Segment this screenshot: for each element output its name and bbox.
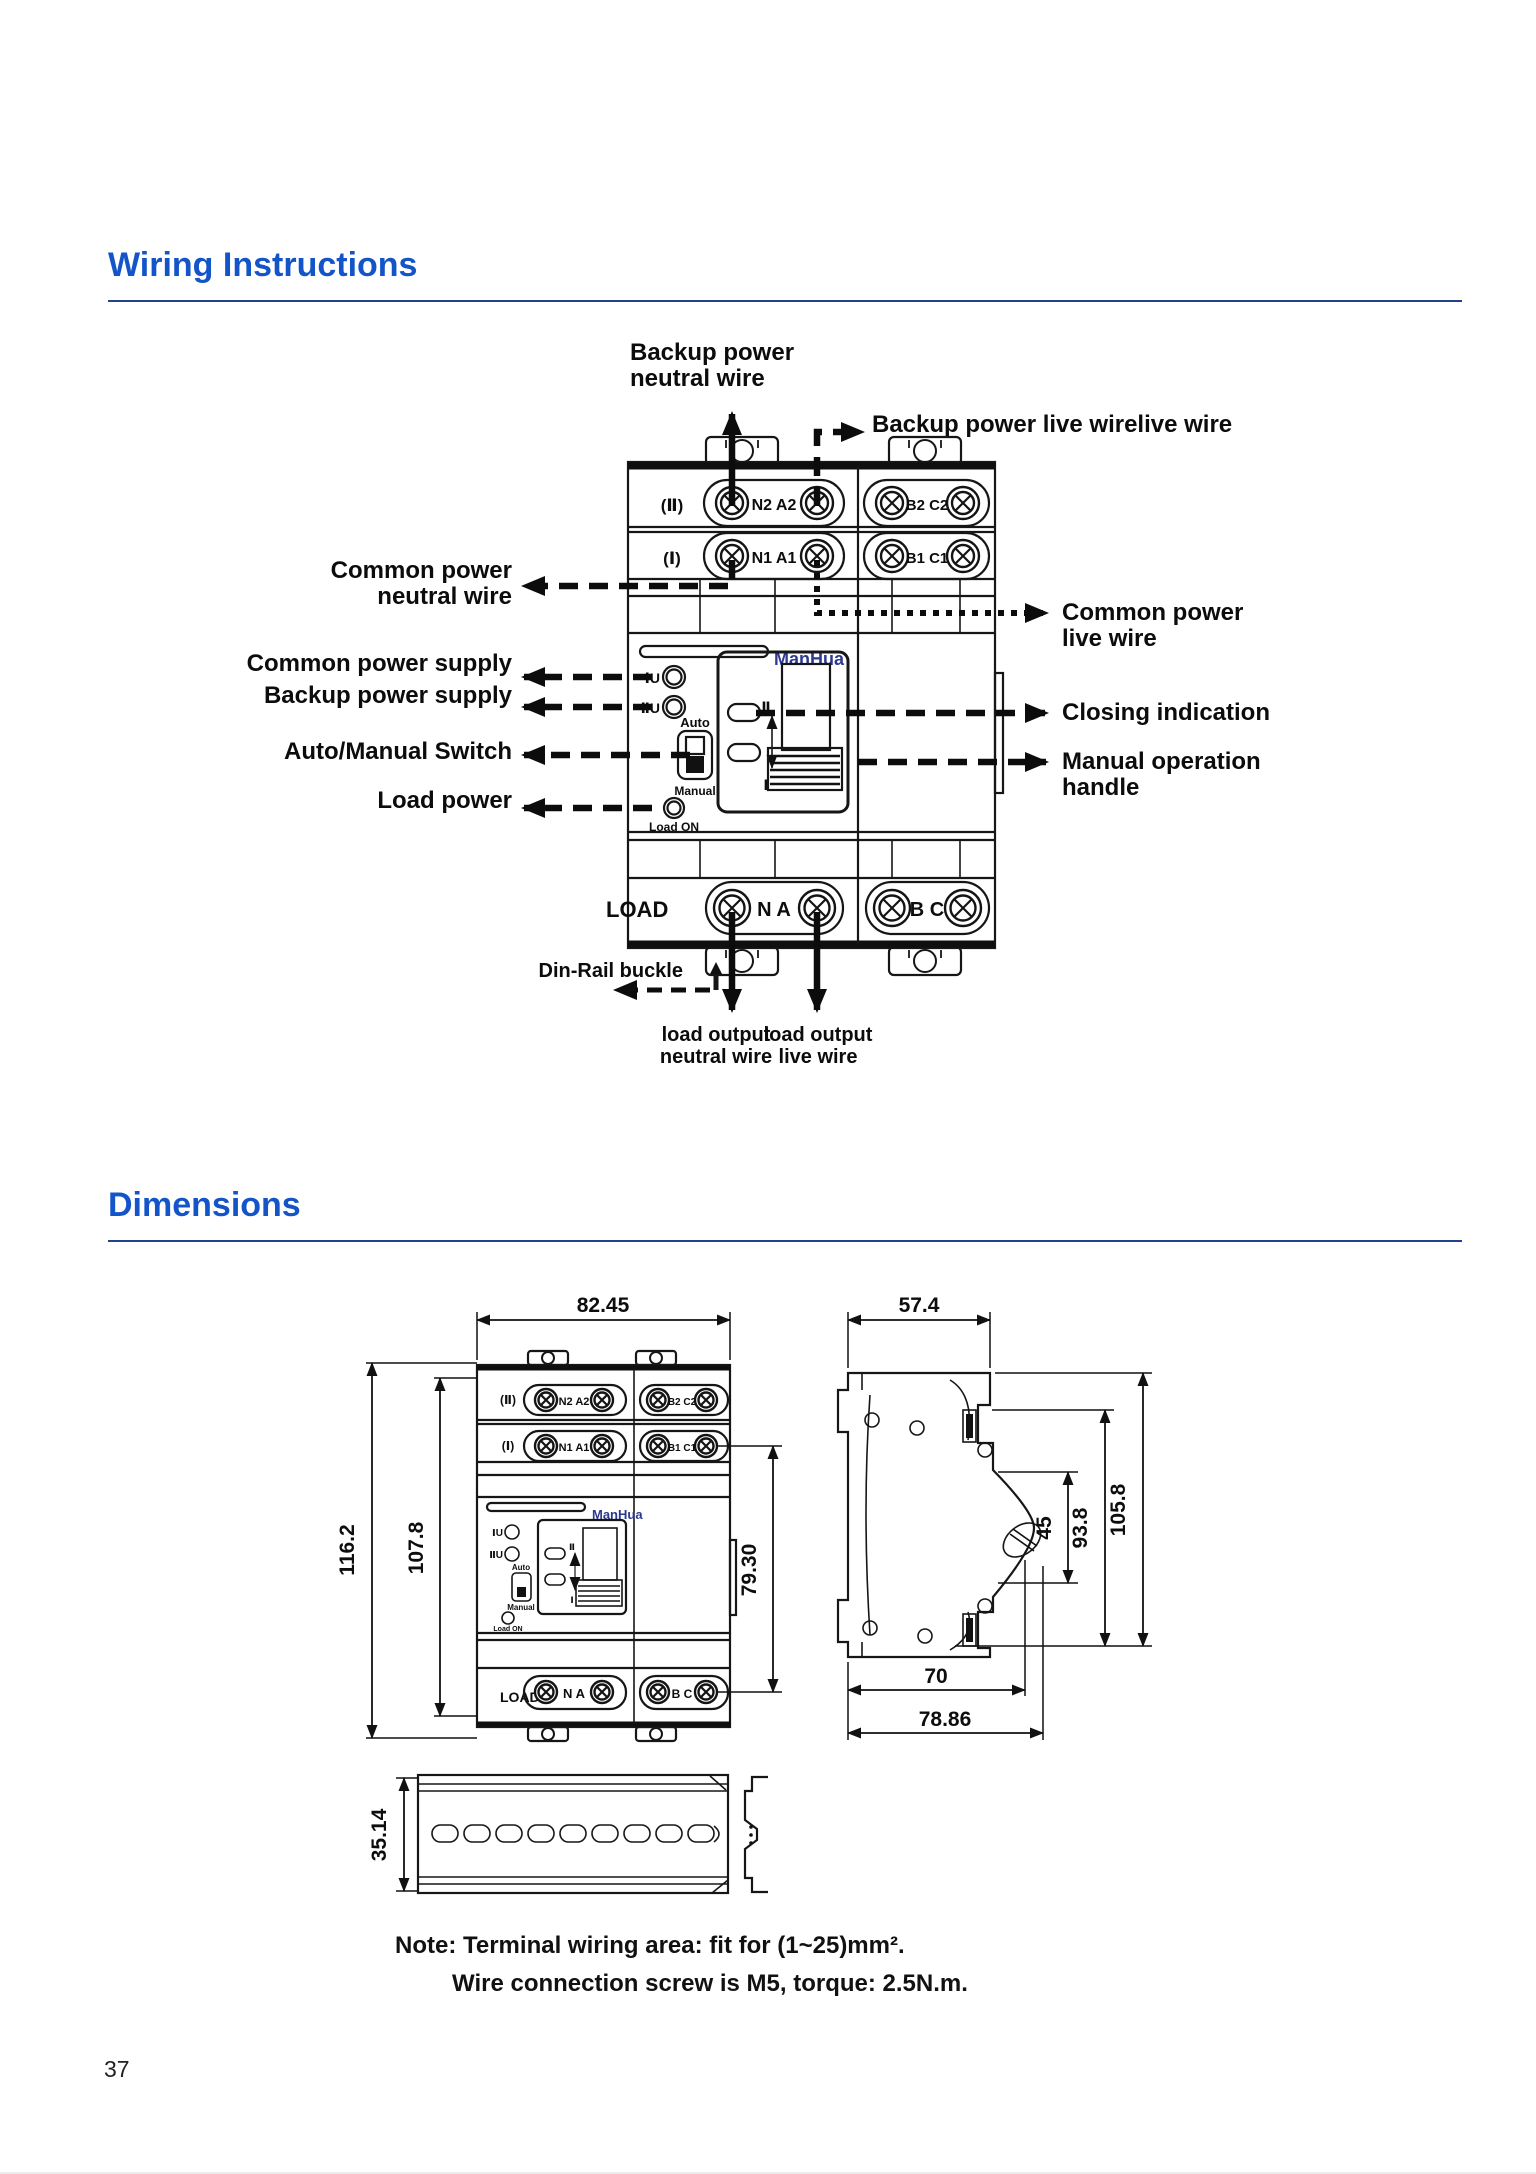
dim-side-handle: 45 (1033, 1516, 1056, 1540)
terminal-screw-icon (535, 1435, 557, 1457)
terminal-screw-icon (947, 487, 979, 519)
load-on-label: Load ON (649, 820, 699, 834)
terminal-screw-icon (647, 1389, 669, 1411)
load-text: LOAD (606, 897, 668, 922)
mounting-ear-icon (636, 1727, 676, 1741)
load-terminal-row: LOAD N A B C (606, 882, 989, 934)
diagram-canvas: (Ⅱ) N2 A2 B2 C2 (Ⅰ) (0, 0, 1536, 2172)
rail-slots (432, 1825, 714, 1842)
terminal-screw-icon (874, 890, 910, 926)
f-handle-knob (576, 1580, 622, 1606)
f-load: LOAD (500, 1689, 540, 1705)
wiring-figure: (Ⅱ) N2 A2 B2 C2 (Ⅰ) (524, 414, 1046, 1010)
dim-side-outer: 105.8 (1107, 1483, 1130, 1536)
terminal-row-2: (Ⅱ) N2 A2 B2 C2 (661, 480, 989, 526)
dimension-front-view: (Ⅱ) N2 A2 B2 C2 (Ⅰ) N1 A1 B1 C1 ManHua Ⅰ… (336, 1294, 782, 1741)
f-row1-left: N1 A1 (559, 1442, 590, 1454)
row1-right-text: B1 C1 (906, 550, 949, 567)
f-row1-right: B1 C1 (668, 1443, 697, 1454)
f-ind1: ⅠU (492, 1528, 503, 1539)
dim-front-width: 82.45 (577, 1294, 630, 1317)
mounting-ear-icon (889, 947, 961, 975)
terminal-row-1: (Ⅰ) N1 A1 B1 C1 (663, 533, 989, 579)
load-left-text: N A (757, 899, 791, 921)
dim-front-height-outer: 116.2 (336, 1524, 359, 1575)
dim-rail-height: 35.14 (368, 1808, 391, 1861)
common-live-arrow (817, 560, 1046, 613)
row2-left-text: N2 A2 (752, 497, 797, 514)
mounting-ear-icon (528, 1351, 568, 1365)
f-load-left: N A (563, 1686, 586, 1701)
terminal-screw-icon (591, 1389, 613, 1411)
ats-device-front: (Ⅱ) N2 A2 B2 C2 (Ⅰ) (606, 462, 1003, 948)
f-load-right: B C (672, 1687, 693, 1701)
din-rail-drawing: 35.14 (368, 1775, 768, 1893)
terminal-screw-icon (647, 1435, 669, 1457)
terminal-screw-icon (695, 1435, 717, 1457)
f-pos2: Ⅱ (569, 1542, 575, 1552)
dim-side-depth-total: 78.86 (919, 1708, 972, 1731)
indicator-window (728, 744, 760, 761)
f-row1-label: (Ⅰ) (502, 1439, 514, 1453)
handle-slot (782, 664, 830, 750)
closing-indicator-window (728, 704, 760, 721)
row2-right-text: B2 C2 (906, 497, 949, 514)
terminal-screw-icon (647, 1681, 669, 1703)
terminal-screw-icon (876, 540, 908, 572)
terminal-screw-icon (535, 1389, 557, 1411)
terminal-screw-icon (535, 1681, 557, 1703)
mounting-ear-icon (706, 437, 778, 465)
auto-label: Auto (680, 715, 710, 730)
terminal-screw-icon (876, 487, 908, 519)
dim-front-height-inner: 107.8 (405, 1521, 428, 1574)
terminal-screw-icon (801, 540, 833, 572)
row1-left-text: N1 A1 (752, 550, 797, 567)
f-manual: Manual (507, 1603, 535, 1612)
dimension-side-view: 57.4 105.8 93.8 45 70 78.86 (838, 1294, 1152, 1740)
side-tab (995, 673, 1003, 793)
f-pos1: Ⅰ (570, 1595, 573, 1605)
dim-side-width: 57.4 (899, 1294, 940, 1317)
terminal-screw-icon (591, 1435, 613, 1457)
terminal-screw-icon (695, 1681, 717, 1703)
manual-label: Manual (674, 784, 715, 798)
row1-label: (Ⅰ) (663, 549, 681, 568)
rail-profile (745, 1777, 768, 1892)
load-right-text: B C (910, 899, 944, 921)
row2-label: (Ⅱ) (661, 496, 684, 515)
mounting-ear-icon (528, 1727, 568, 1741)
terminal-screw-icon (945, 890, 981, 926)
f-row2-left: N2 A2 (559, 1396, 590, 1408)
dim-side-depth: 70 (924, 1665, 947, 1688)
f-auto: Auto (512, 1563, 530, 1572)
f-row2-right: B2 C2 (668, 1397, 697, 1408)
dim-front-height-right: 79.30 (738, 1544, 761, 1597)
terminal-screw-icon (947, 540, 979, 572)
mounting-ear-icon (636, 1351, 676, 1365)
manual-handle-knob (768, 748, 842, 790)
dim-side-inner: 93.8 (1069, 1507, 1092, 1548)
front-panel: ManHua ⅠU ⅡU Auto Manual Load ON Ⅱ (640, 646, 848, 834)
terminal-screw-icon (591, 1681, 613, 1703)
mounting-ear-icon (889, 437, 961, 465)
manual-page: Wiring Instructions Dimensions Backup po… (0, 0, 1536, 2174)
f-row2-label: (Ⅱ) (500, 1393, 516, 1407)
terminal-screw-icon (695, 1389, 717, 1411)
f-load-on: Load ON (493, 1626, 522, 1633)
f-ind2: ⅡU (489, 1550, 503, 1561)
